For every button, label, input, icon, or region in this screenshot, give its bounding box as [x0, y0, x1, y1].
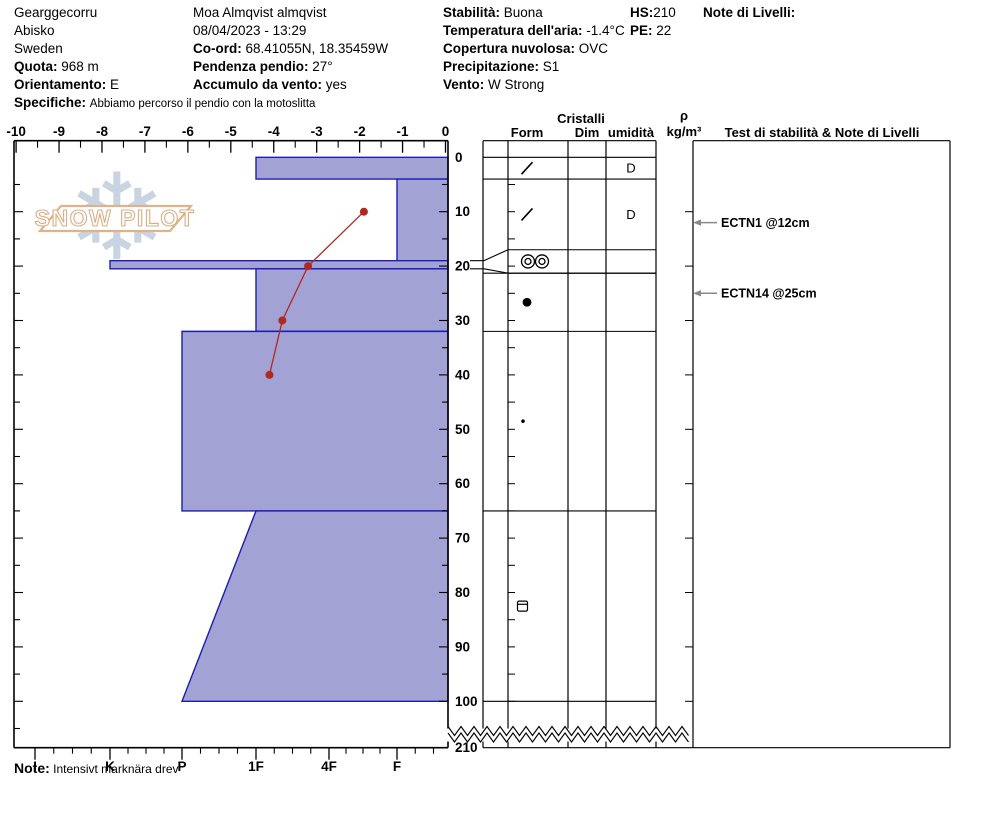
temperature-point [265, 371, 273, 379]
temp-tick-label: -3 [311, 124, 323, 139]
temp-tick-label: -8 [96, 124, 108, 139]
crystal-form-symbol-mfcr [536, 255, 549, 268]
watermark-text: SNOW PILOT [35, 205, 196, 231]
temperature-point [304, 262, 312, 270]
hardness-tick-label: 4F [321, 759, 337, 774]
depth-label: 40 [455, 367, 470, 382]
temperature-point [360, 208, 368, 216]
temp-tick-label: -4 [268, 124, 280, 139]
snow-layer [110, 261, 448, 269]
temp-tick-label: -7 [139, 124, 151, 139]
depth-label: 60 [455, 476, 470, 491]
crystal-form-symbol-mfcr [522, 255, 535, 268]
stability-tests-header: Test di stabilità & Note di Livelli [725, 125, 920, 140]
depth-label: 30 [455, 313, 470, 328]
hardness-tick-label: P [177, 759, 186, 774]
thin-layer-flare [484, 250, 508, 261]
depth-label: 50 [455, 422, 470, 437]
crystal-form-symbol-df [522, 162, 533, 174]
depth-label: 80 [455, 585, 470, 600]
snow-layer [397, 179, 448, 261]
crystal-form-symbol-mfcr [525, 258, 531, 264]
pit-note: Note: Intensivt marknära drev [14, 760, 179, 776]
crystal-form-symbol-df [522, 208, 533, 220]
snow-profile-chart: ❄ SNOW PILOT -10-9-8-7-6-5-4-3-2-10IKP1F… [0, 0, 994, 840]
ground-depth-label: 210 [455, 740, 478, 755]
temp-tick-label: -2 [354, 124, 366, 139]
wetness-column-header: umidità [608, 125, 655, 140]
stability-test-label: ECTN1 @12cm [721, 216, 810, 230]
snow-layer [182, 511, 448, 701]
stability-test-label: ECTN14 @25cm [721, 287, 817, 301]
wetness-value: D [626, 161, 635, 176]
temp-tick-label: 0 [442, 124, 450, 139]
depth-label: 10 [455, 204, 470, 219]
crystal-form-symbol-rg [523, 298, 532, 307]
hardness-tick-label: F [393, 759, 401, 774]
snow-layer [256, 157, 448, 179]
temp-tick-label: -6 [182, 124, 194, 139]
density-column-header: ρ [680, 108, 688, 123]
stability-test-arrowhead [693, 219, 701, 225]
temperature-point [278, 317, 286, 325]
crystals-header: Cristalli [557, 111, 605, 126]
wetness-value: D [626, 207, 635, 222]
snowpilot-report: Gearggecorru Abisko Sweden Quota: 968 m … [0, 0, 994, 840]
depth-label: 100 [455, 694, 478, 709]
crystal-form-symbol-mfcr [539, 258, 545, 264]
table-header-group: Cristalli Form Dim umidità ρ kg/m³ Test … [511, 108, 920, 140]
hardness-tick-label: 1F [248, 759, 264, 774]
stability-test-arrowhead [693, 290, 701, 296]
form-column-header: Form [511, 125, 544, 140]
thin-layer-flare [484, 269, 508, 273]
depth-label: 70 [455, 531, 470, 546]
temp-tick-label: -9 [53, 124, 65, 139]
temp-tick-label: -1 [397, 124, 409, 139]
crystal-form-symbol-rg-small [521, 419, 525, 423]
depth-label: 20 [455, 259, 470, 274]
depth-break-zigzag [448, 733, 689, 742]
snow-layer [182, 331, 448, 511]
temp-tick-label: -5 [225, 124, 237, 139]
density-units-header: kg/m³ [667, 124, 702, 139]
crystal-form-symbol-fc [518, 601, 528, 611]
depth-label: 0 [455, 150, 463, 165]
dim-column-header: Dim [575, 125, 600, 140]
depth-label: 90 [455, 639, 470, 654]
temp-tick-label: -10 [6, 124, 26, 139]
